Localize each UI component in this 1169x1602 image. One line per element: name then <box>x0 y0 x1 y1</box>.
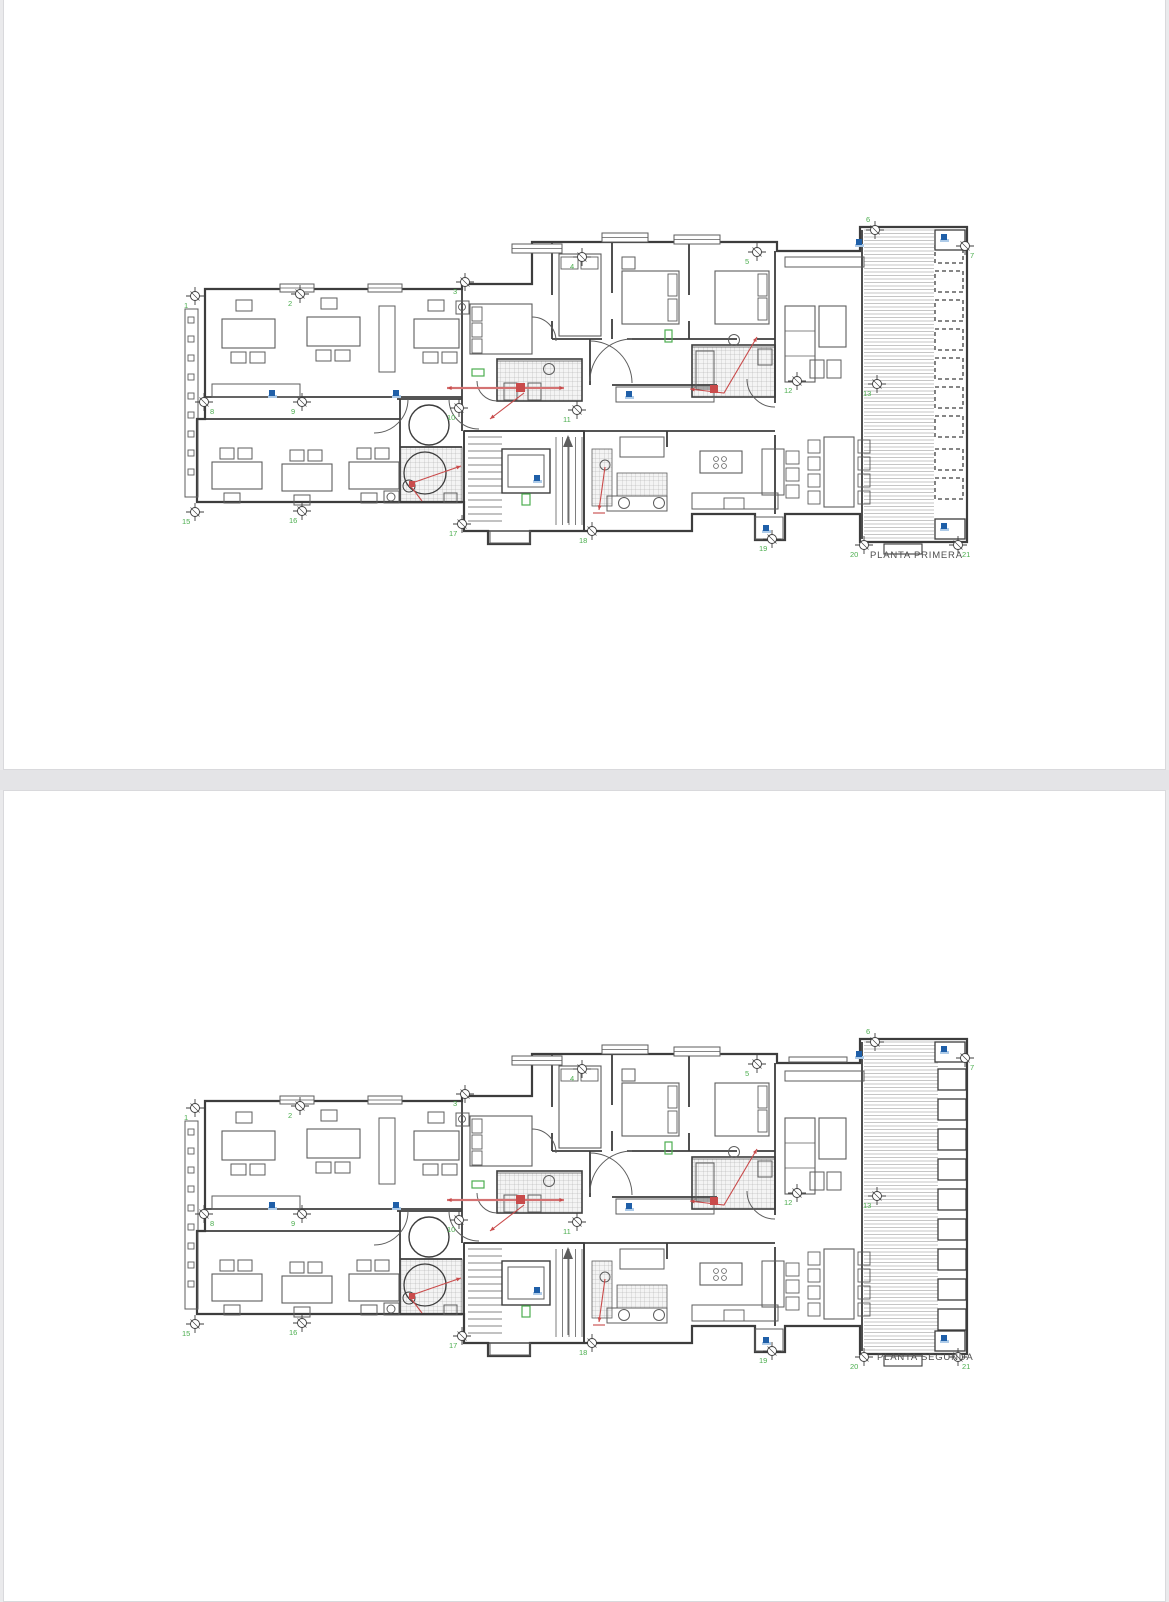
svg-text:4: 4 <box>570 262 574 271</box>
svg-text:19: 19 <box>759 544 767 553</box>
svg-text:11: 11 <box>563 1227 571 1236</box>
svg-text:16: 16 <box>289 1328 297 1337</box>
plan-label: PLANTA SEGUNDA <box>877 1352 974 1363</box>
svg-text:4: 4 <box>570 1074 574 1083</box>
svg-text:3: 3 <box>453 1099 457 1108</box>
document-canvas: 1234567891011121315161718192021 PLANTA P… <box>0 0 1169 1600</box>
svg-text:5: 5 <box>745 257 749 266</box>
svg-text:13: 13 <box>863 1201 871 1210</box>
svg-text:1: 1 <box>184 301 188 310</box>
svg-text:9: 9 <box>291 1219 295 1228</box>
plan-drawing: 1234567891011121315161718192021 <box>182 1027 974 1371</box>
svg-text:6: 6 <box>866 215 870 224</box>
svg-text:5: 5 <box>745 1069 749 1078</box>
svg-text:17: 17 <box>449 1341 457 1350</box>
floor-plan-primera: 1234567891011121315161718192021 PLANTA P… <box>172 197 982 572</box>
svg-text:21: 21 <box>962 550 970 559</box>
svg-text:18: 18 <box>579 1348 587 1357</box>
svg-text:10: 10 <box>447 1225 455 1234</box>
page-1: 1234567891011121315161718192021 PLANTA P… <box>3 0 1166 770</box>
svg-text:11: 11 <box>563 415 571 424</box>
svg-text:18: 18 <box>579 536 587 545</box>
floor-plan-segunda: 1234567891011121315161718192021 PLANTA S… <box>172 1009 982 1384</box>
svg-text:17: 17 <box>449 529 457 538</box>
svg-text:16: 16 <box>289 516 297 525</box>
svg-text:8: 8 <box>210 407 214 416</box>
svg-text:3: 3 <box>453 287 457 296</box>
svg-text:2: 2 <box>288 299 292 308</box>
page-2: 1234567891011121315161718192021 PLANTA S… <box>3 790 1166 1602</box>
svg-text:15: 15 <box>182 1329 190 1338</box>
svg-text:7: 7 <box>970 251 974 260</box>
svg-text:1: 1 <box>184 1113 188 1122</box>
plan-drawing: 1234567891011121315161718192021 <box>182 215 974 559</box>
svg-text:12: 12 <box>784 1198 792 1207</box>
svg-text:20: 20 <box>850 550 858 559</box>
svg-text:6: 6 <box>866 1027 870 1036</box>
page-gap <box>0 770 1169 790</box>
svg-text:13: 13 <box>863 389 871 398</box>
svg-text:15: 15 <box>182 517 190 526</box>
svg-text:12: 12 <box>784 386 792 395</box>
plan-label: PLANTA PRIMERA <box>870 550 963 561</box>
svg-text:7: 7 <box>970 1063 974 1072</box>
svg-text:10: 10 <box>447 413 455 422</box>
svg-text:19: 19 <box>759 1356 767 1365</box>
svg-text:21: 21 <box>962 1362 970 1371</box>
svg-text:9: 9 <box>291 407 295 416</box>
svg-text:2: 2 <box>288 1111 292 1120</box>
svg-text:8: 8 <box>210 1219 214 1228</box>
svg-text:20: 20 <box>850 1362 858 1371</box>
